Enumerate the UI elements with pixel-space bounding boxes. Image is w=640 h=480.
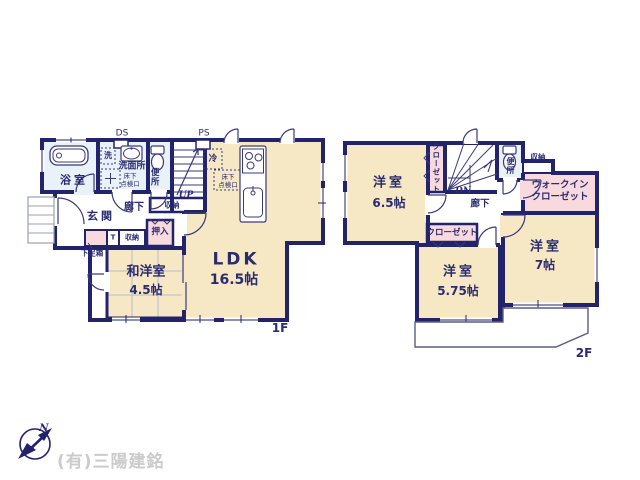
underfloor-hatch-label-1: 床下: [124, 173, 137, 180]
ldk-underfloor-label-2: 点検口: [218, 182, 238, 189]
hallway2f-label: 廊下: [470, 199, 489, 209]
bedroom-c-size-label: 7帖: [535, 259, 555, 271]
under-stairs-storage-label: 収納: [165, 201, 180, 209]
ldk-size-label: 16.5帖: [210, 273, 259, 287]
kitchen-counter-icon: [240, 146, 266, 222]
walkin-closet-label-1: ウォークイン: [531, 180, 588, 190]
duct-space-label: DS: [116, 130, 129, 139]
pipe-space-box: [196, 140, 210, 149]
shoe-box-label: 下足箱: [81, 249, 104, 257]
small-storage-label: 収納: [125, 235, 139, 242]
washer-label: 洗: [104, 152, 112, 160]
walkin-closet-label-2: クローゼット: [531, 192, 588, 202]
bedroom-a-name-label: 洋室: [373, 177, 405, 190]
t-unit-label: T: [111, 235, 116, 242]
tatami-room-size-label: 4.5帖: [129, 284, 162, 296]
entrance-label: 玄関: [87, 211, 115, 222]
washbasin-icon: [121, 146, 142, 161]
floor2-label: 2F: [576, 347, 593, 359]
bedroom-b-name-label: 洋室: [443, 266, 475, 279]
stairs-down-label: DN: [455, 188, 471, 197]
bathtub-icon: [50, 146, 88, 165]
bedroom-c-name-label: 洋室: [530, 241, 562, 254]
toilet-icon-1f: [151, 146, 164, 170]
bedroom-b-floor: [417, 245, 500, 320]
storage2f-box: [523, 162, 553, 173]
floor-plan: DS PS 浴室 洗 洗面所 床下 点検口 便所 UP 収納 玄関 廊下 下足箱…: [0, 0, 640, 480]
toilet2f-label: 便所: [506, 157, 514, 175]
ldk-underfloor-label-1: 床下: [222, 174, 235, 181]
storage2f-label: 収納: [531, 153, 546, 161]
underfloor-hatch-label-2: 点検口: [120, 181, 140, 188]
compass-north-label: N: [39, 424, 48, 434]
bathroom-label: 浴室: [60, 175, 88, 186]
oshiire-label: 押入: [151, 228, 168, 237]
stairs-up-label: UP: [179, 192, 194, 201]
porch-steps-icon: [28, 197, 54, 243]
bedroom-a-size-label: 6.5帖: [372, 197, 405, 209]
pipe-space-label: PS: [198, 130, 209, 139]
toilet1f-label: 便所: [150, 168, 159, 187]
tatami-room-name-label: 和洋室: [126, 266, 165, 279]
company-name: (有)三陽建銘: [57, 447, 165, 472]
hall2f-vestibule: [497, 180, 523, 213]
fridge-label: 冷: [209, 155, 218, 164]
bedroom-b-size-label: 5.75帖: [437, 285, 479, 297]
bedroom-a-floor: [345, 143, 428, 243]
closet-a-label: クローゼット: [432, 143, 440, 194]
closet-b-label: クローゼット: [426, 229, 477, 238]
washroom-label: 洗面所: [118, 163, 145, 172]
hallway1f-label: 廊下: [124, 203, 144, 213]
floor1-label: 1F: [272, 322, 289, 334]
ldk-name-label: LDK: [212, 252, 259, 269]
